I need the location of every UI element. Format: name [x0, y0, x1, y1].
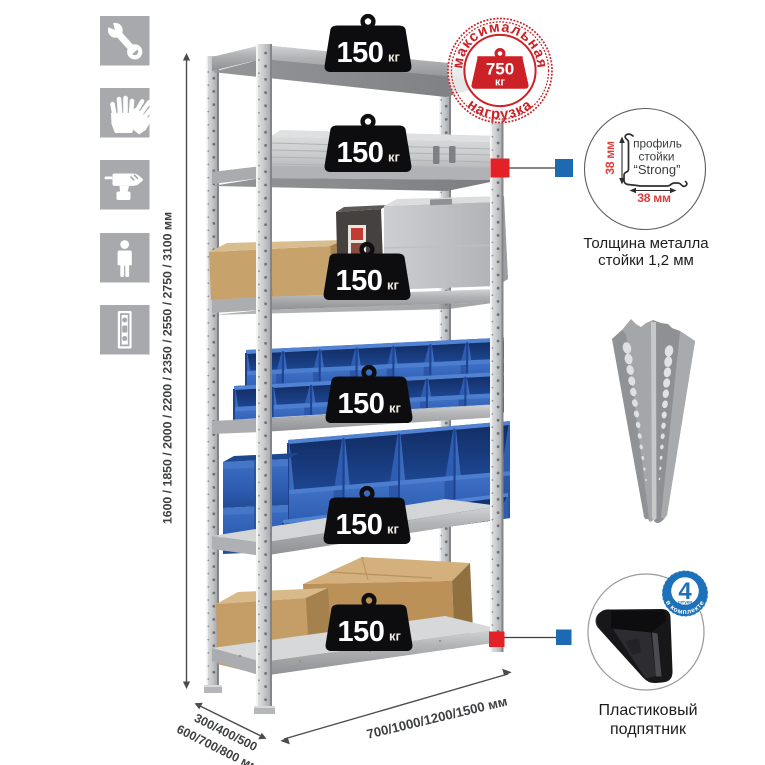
svg-text:38 мм: 38 мм: [637, 191, 671, 205]
svg-text:профиль: профиль: [633, 137, 682, 151]
svg-text:кг: кг: [389, 401, 402, 416]
svg-text:Пластиковый: Пластиковый: [598, 702, 697, 719]
svg-text:кг: кг: [495, 77, 505, 89]
svg-text:150: 150: [337, 137, 384, 169]
svg-text:кг: кг: [387, 522, 400, 537]
svg-text:150: 150: [338, 388, 385, 420]
svg-text:150: 150: [337, 37, 384, 69]
svg-text:подпятник: подпятник: [610, 721, 687, 738]
svg-text:кг: кг: [388, 50, 401, 65]
svg-text:“Strong”: “Strong”: [634, 162, 681, 177]
svg-text:150: 150: [336, 265, 383, 297]
svg-text:штуки: штуки: [678, 600, 692, 605]
svg-text:стойки 1,2 мм: стойки 1,2 мм: [598, 252, 694, 269]
svg-text:кг: кг: [387, 278, 400, 293]
svg-text:Толщина металла: Толщина металла: [583, 235, 709, 252]
svg-text:кг: кг: [389, 629, 402, 644]
svg-text:150: 150: [338, 616, 385, 648]
svg-text:кг: кг: [388, 150, 401, 165]
svg-text:1600 / 1850 / 2000 / 2200 / 23: 1600 / 1850 / 2000 / 2200 / 2350 / 2550 …: [161, 212, 175, 524]
svg-text:38 мм: 38 мм: [603, 141, 617, 175]
svg-text:150: 150: [336, 509, 383, 541]
